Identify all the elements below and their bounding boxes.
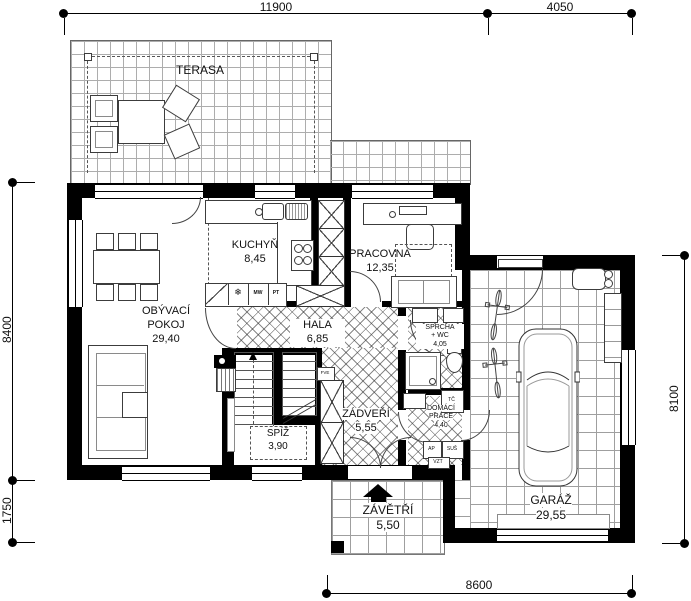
room-area: 8,45 xyxy=(244,253,265,265)
room-label-kuchyn: KUCHYŇ 8,45 xyxy=(215,239,295,267)
dimension-dot xyxy=(680,539,689,548)
dimension-tick xyxy=(17,542,35,543)
mower-wheel-icon xyxy=(604,279,613,288)
dining-chair xyxy=(140,284,158,301)
living-hall-door-swing xyxy=(205,308,236,349)
room-name: PRACOVNA xyxy=(349,248,411,260)
room-label-spiz: SPÍŽ 3,90 xyxy=(251,428,305,453)
pergola-post xyxy=(84,53,92,61)
hob-burner-icon xyxy=(303,244,312,253)
dining-chair xyxy=(96,284,114,301)
car-top-view xyxy=(516,326,580,489)
room-label-hala: HALA 6,85 xyxy=(290,319,345,347)
room-area: 4,40 xyxy=(434,422,448,429)
room-label-domaci-prace: DOMÁCÍ PRÁCE 4,40 xyxy=(417,405,465,430)
room-name: HALA xyxy=(303,319,332,331)
dimension-tick xyxy=(64,18,65,35)
dimension-tick xyxy=(488,18,489,35)
dimension-dot xyxy=(8,476,17,485)
room-label-zavetri: ZÁVĚTŘÍ 5,50 xyxy=(348,503,428,533)
fridge-icon: ❄ xyxy=(230,288,246,297)
kitchen-sink-bowl xyxy=(262,203,284,220)
room-name: GARÁŽ xyxy=(530,493,571,507)
tall-cabinet xyxy=(318,200,345,230)
dimension-label-8600: 8600 xyxy=(439,578,519,592)
microwave-label: MW xyxy=(249,291,267,296)
room-area: 6,85 xyxy=(307,333,328,345)
room-area: 29,40 xyxy=(152,333,180,345)
shower-washbasin xyxy=(443,308,464,323)
stair-flight-main xyxy=(234,352,274,426)
entrance-arrow-icon xyxy=(363,484,393,497)
dimension-tick xyxy=(662,255,680,256)
shower-door-opening xyxy=(398,316,406,350)
room-name: SPÍŽ xyxy=(267,428,289,439)
dimension-dot xyxy=(483,9,492,18)
room-area: 4,05 xyxy=(433,341,447,348)
desk-monitor xyxy=(399,206,427,215)
dimension-label-11900: 11900 xyxy=(236,0,316,14)
floor-plan: ❄ MW PT TČ AP SUŠ VZT FVE xyxy=(0,0,691,601)
room-name: ZÁDVEŘÍ xyxy=(342,408,390,420)
sofa-cushion-line xyxy=(96,385,144,386)
room-name: + WC xyxy=(431,332,449,339)
terrace-apron-floor xyxy=(330,140,471,185)
dimension-tick xyxy=(632,575,633,591)
room-label-pracovna: PRACOVNA 12,35 xyxy=(337,248,423,276)
room-area: 12,35 xyxy=(366,262,394,274)
corner-cabinet xyxy=(296,285,345,307)
cabinet-diagonal xyxy=(205,283,229,305)
dimension-dot xyxy=(8,538,17,547)
lawn-mower xyxy=(572,268,606,290)
garage-shelf xyxy=(604,293,622,363)
dimension-line-bottom xyxy=(327,593,632,594)
coffee-table xyxy=(122,392,148,418)
dimension-dot xyxy=(59,9,68,18)
fve-label: FVE xyxy=(317,371,333,376)
dimension-tick xyxy=(662,543,680,544)
ventilation-label: VZT xyxy=(428,460,448,465)
pantry-window xyxy=(252,466,302,481)
dimension-tick xyxy=(632,18,633,35)
dining-chair xyxy=(96,233,114,250)
kitchen-faucet-icon xyxy=(255,208,263,216)
sofa-cushion xyxy=(398,280,425,304)
desk-lamp-icon xyxy=(389,211,396,218)
dimension-tick xyxy=(327,575,328,591)
room-area: 29,55 xyxy=(536,508,566,522)
dimension-line-right xyxy=(684,255,685,543)
room-name: DOMÁCÍ xyxy=(427,405,455,412)
garage-gate xyxy=(497,529,608,542)
room-area: 3,90 xyxy=(268,441,287,452)
garage-garden-door-leaf xyxy=(498,259,543,268)
dimension-dot xyxy=(627,9,636,18)
sofa-cushion xyxy=(423,280,450,304)
room-label-sprcha-wc: SPRCHA + WC 4,05 xyxy=(416,324,464,349)
room-name: POKOJ xyxy=(147,319,184,331)
dining-chair xyxy=(118,233,136,250)
dimension-dot xyxy=(680,251,689,260)
living-south-window xyxy=(122,466,210,481)
pergola-post xyxy=(310,53,318,61)
dimension-label-8400: 8400 xyxy=(0,300,14,360)
terrace-chair-seat xyxy=(95,131,113,148)
room-label-zadveri: ZÁDVEŘÍ 5,55 xyxy=(326,408,406,436)
room-name: ZÁVĚTŘÍ xyxy=(363,503,414,517)
hall-washbasin xyxy=(412,308,438,323)
dimension-tick xyxy=(17,182,35,183)
washer-label: AP xyxy=(423,447,440,452)
room-name: SPRCHA xyxy=(425,324,454,331)
porch-east-wall xyxy=(443,470,455,530)
dining-chair xyxy=(118,284,136,301)
room-name: PRÁCE xyxy=(429,413,453,420)
study-door-swing xyxy=(350,271,381,302)
kitchen-window xyxy=(255,184,295,199)
hob-burner-icon xyxy=(294,244,303,253)
dining-chair xyxy=(140,233,158,250)
hob-burner-icon xyxy=(294,256,303,265)
room-area: 5,55 xyxy=(355,422,376,434)
hob-burner-icon xyxy=(303,256,312,265)
room-label-terasa: TERASA xyxy=(160,63,240,78)
fireplace-top xyxy=(214,355,236,368)
dining-table xyxy=(93,250,160,284)
heat-pump-label: TČ xyxy=(441,398,462,403)
bicycles xyxy=(482,288,510,404)
shower-drain-icon xyxy=(429,378,436,385)
room-label-garaz: GARÁŽ 29,55 xyxy=(511,493,591,523)
garage-window xyxy=(621,350,636,445)
terrace-table xyxy=(118,100,165,144)
dimension-label-8100: 8100 xyxy=(667,374,681,424)
mower-wheel-icon xyxy=(604,270,613,279)
pt-label: PT xyxy=(269,291,283,296)
dimension-label-1750: 1750 xyxy=(0,487,14,535)
study-window xyxy=(352,184,433,199)
room-name: TERASA xyxy=(176,63,224,77)
terrace-door-swing xyxy=(172,197,201,224)
fireplace-body xyxy=(216,368,236,392)
fireplace-flue-icon xyxy=(219,358,225,364)
terrace-chair-seat xyxy=(95,100,113,117)
garage-north-wall xyxy=(455,255,635,270)
room-name: OBÝVACÍ xyxy=(142,305,190,317)
dimension-dot xyxy=(8,178,17,187)
stair-up-arrow-icon xyxy=(249,352,257,360)
porch-post xyxy=(331,541,344,553)
room-label-obyvaci-pokoj: OBÝVACÍ POKOJ 29,40 xyxy=(125,305,207,346)
tv-board xyxy=(227,398,235,452)
entrance-arrow-stem xyxy=(371,497,386,502)
stair-walk-line xyxy=(253,360,254,424)
room-name: KUCHYŇ xyxy=(232,239,278,251)
living-west-window xyxy=(68,220,83,307)
kitchen-sink-drainer xyxy=(285,203,308,220)
dimension-tick xyxy=(17,480,35,481)
dimension-label-4050: 4050 xyxy=(520,0,600,14)
dryer-label: SUŠ xyxy=(442,447,462,452)
room-area: 5,50 xyxy=(376,518,399,532)
